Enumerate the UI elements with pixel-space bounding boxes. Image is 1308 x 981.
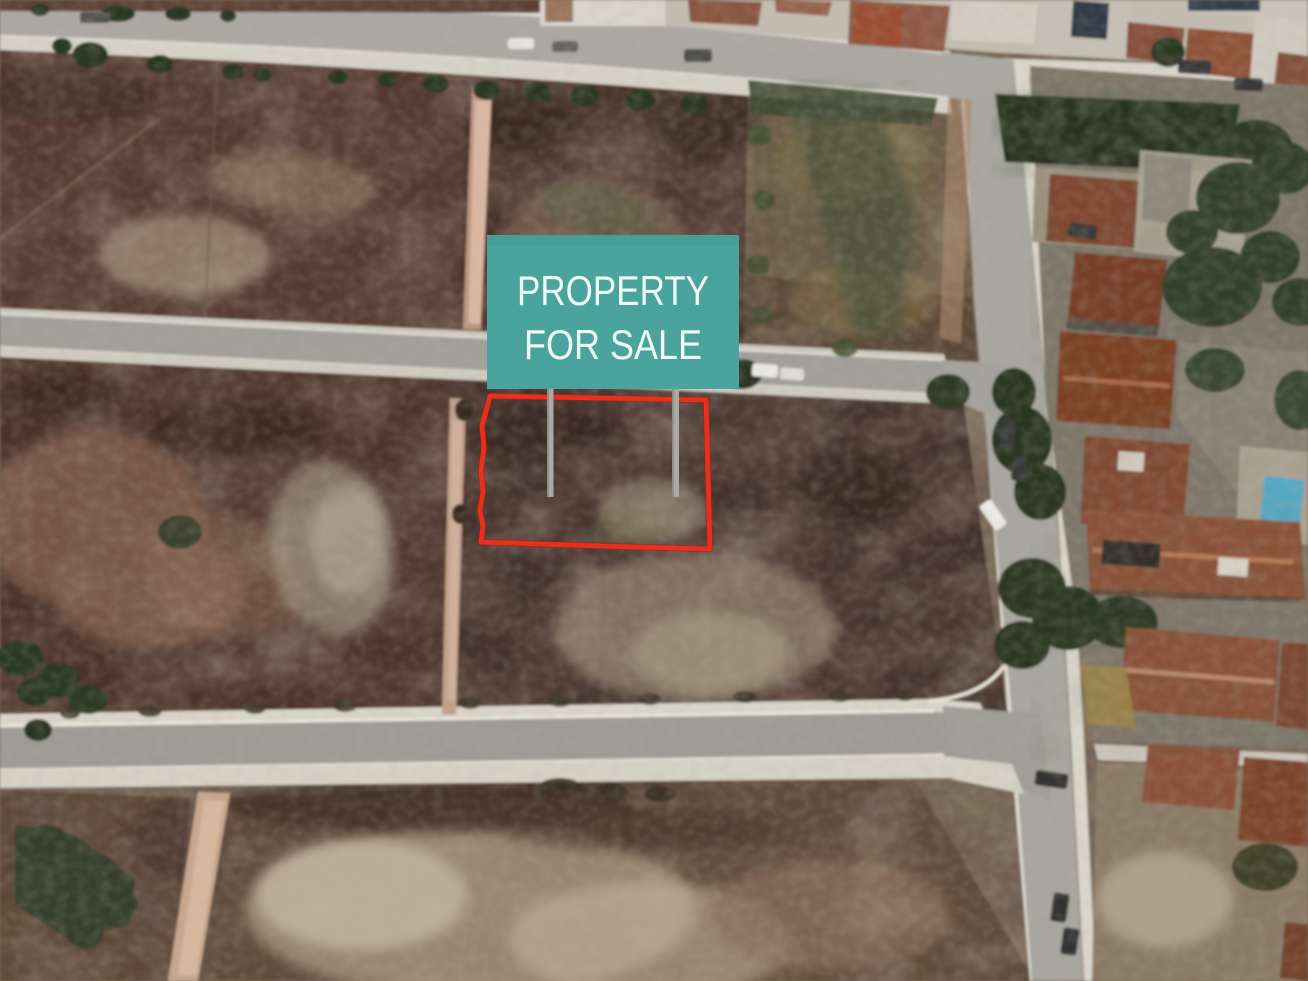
svg-text:PROPERTY: PROPERTY [517,267,709,314]
svg-text:FOR SALE: FOR SALE [524,321,702,368]
